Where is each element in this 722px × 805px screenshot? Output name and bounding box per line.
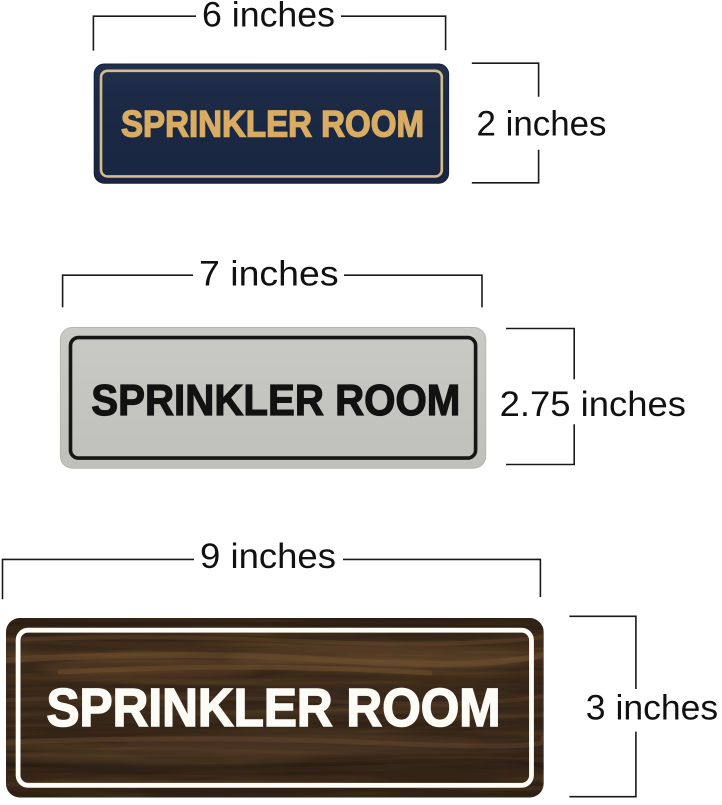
svg-text:3 inches: 3 inches <box>586 688 718 727</box>
svg-text:SPRINKLER ROOM: SPRINKLER ROOM <box>91 376 460 425</box>
svg-text:7 inches: 7 inches <box>199 255 339 294</box>
svg-text:6 inches: 6 inches <box>202 0 335 35</box>
svg-text:9 inches: 9 inches <box>200 537 336 576</box>
svg-text:SPRINKLER ROOM: SPRINKLER ROOM <box>121 103 424 144</box>
svg-text:SPRINKLER ROOM: SPRINKLER ROOM <box>47 679 501 738</box>
svg-text:2 inches: 2 inches <box>477 105 607 144</box>
svg-text:2.75 inches: 2.75 inches <box>500 385 686 424</box>
